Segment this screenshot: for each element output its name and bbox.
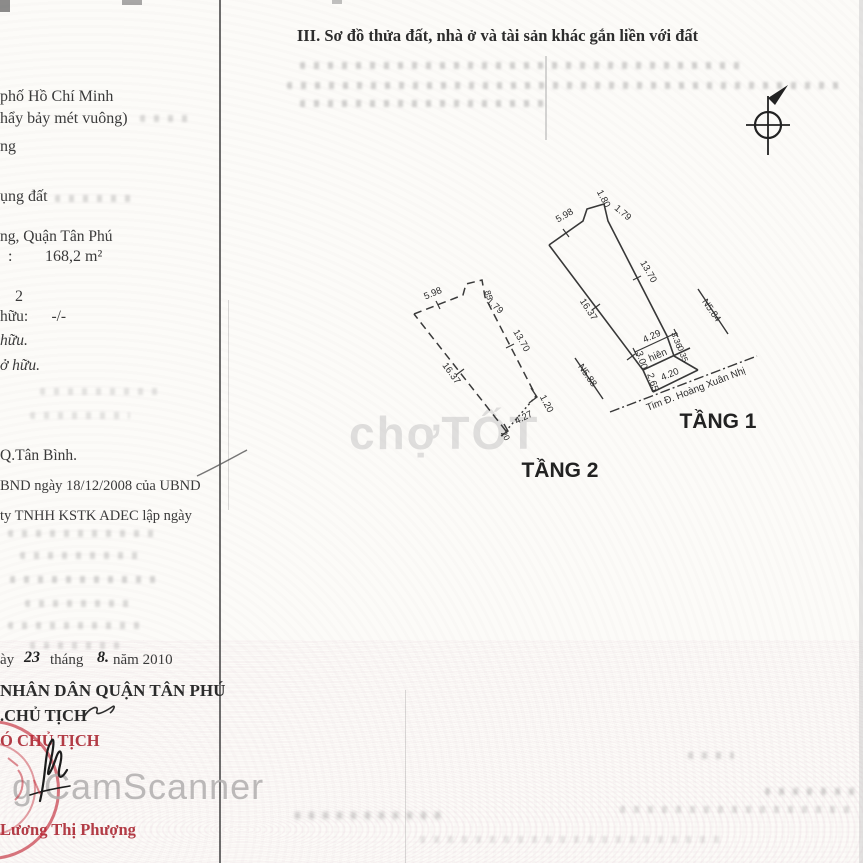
floor2-dim-corner-left: 20 <box>499 429 512 442</box>
compass-flag <box>768 85 788 105</box>
signature-flourish <box>30 786 70 795</box>
floor2-plan <box>414 280 537 436</box>
floor1-left-edge <box>549 245 653 392</box>
chairman-initial-squiggle <box>84 706 114 717</box>
floor2-dim-right: 13.70 <box>510 328 531 354</box>
floor2-dim-corner-right: 1.20 <box>537 393 555 414</box>
floor2-dim-bottom: 4.27 <box>513 409 534 427</box>
floor2-tick <box>436 301 440 309</box>
floor1-porch-label: hiên <box>647 347 669 365</box>
signature <box>30 740 70 801</box>
floor1-dim-right: 13.70 <box>637 259 658 285</box>
floor1-neighbor-right-label: N5.84 <box>699 297 723 324</box>
cadastral-drawing: 5.98 85 1.79 13.70 16.37 1.20 4.27 20 TẦ… <box>0 0 863 863</box>
floor1-dim-left-low2: 2.65 <box>644 372 660 393</box>
stamp-mark <box>34 780 40 794</box>
floor2-label: TẦNG 2 <box>521 459 598 482</box>
floor1-dim-notch-side: 1.79 <box>612 203 633 223</box>
stamp-mark <box>15 770 23 800</box>
floor1-dim-top: 5.98 <box>554 206 576 225</box>
stamp-mark <box>8 758 18 766</box>
floor1-dim-porch-width: 4.29 <box>641 328 662 346</box>
floor1-neighbor-left-label: N5.88 <box>575 362 599 389</box>
scanned-land-certificate: III. Sơ đồ thửa đất, nhà ở và tài sản kh… <box>0 0 863 863</box>
floor2-tick <box>506 344 514 348</box>
floor2-corner-bracket-right <box>529 388 537 403</box>
floor1-label: TẦNG 1 <box>679 410 756 433</box>
floor1-tick <box>563 229 569 237</box>
floor2-dim-top: 5.98 <box>422 285 443 302</box>
pen-stroke <box>197 450 247 476</box>
street-centerline <box>610 356 757 412</box>
floor1-dim-left-low: 3.00 <box>633 350 649 371</box>
floor2-dim-left: 16.37 <box>440 361 463 387</box>
north-arrow-icon <box>746 85 790 155</box>
floor1-dim-left: 16.37 <box>577 297 599 323</box>
floor1-dim-right-low2: 0.35 <box>675 344 690 363</box>
